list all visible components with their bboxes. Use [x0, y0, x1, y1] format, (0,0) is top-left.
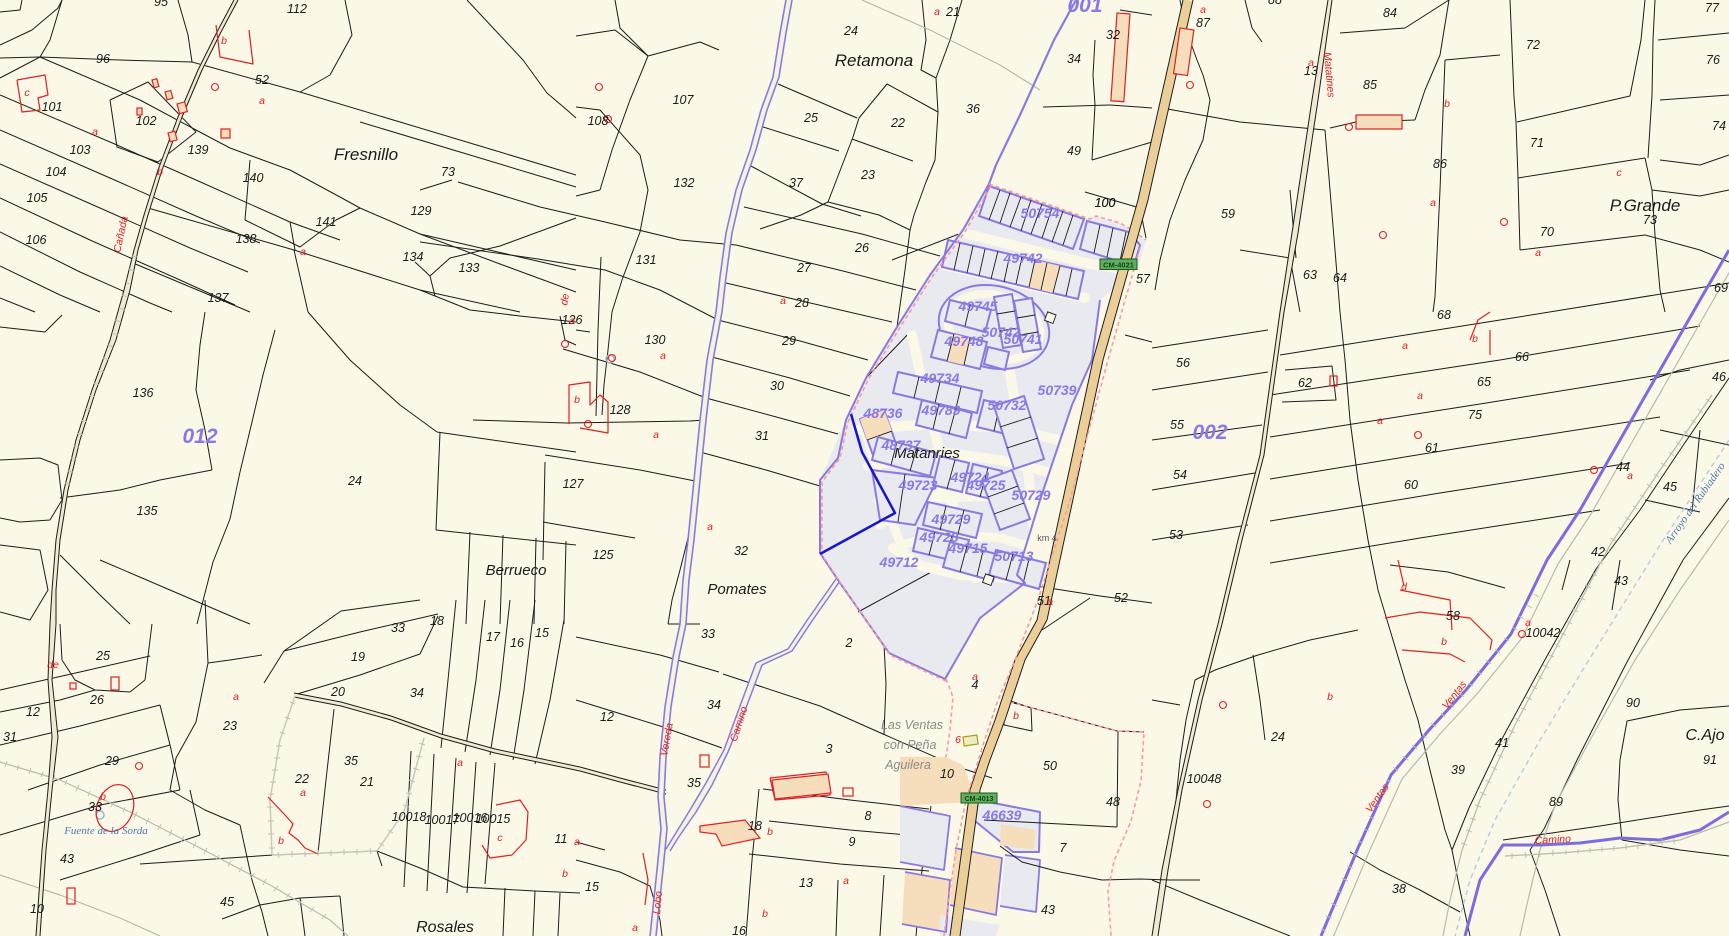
svg-text:a: a	[780, 295, 786, 307]
svg-text:16: 16	[732, 924, 746, 936]
svg-text:133: 133	[459, 261, 480, 275]
svg-text:a: a	[660, 350, 666, 362]
svg-text:Berrueco: Berrueco	[486, 562, 547, 579]
svg-text:24: 24	[347, 474, 362, 488]
svg-text:105: 105	[27, 191, 48, 205]
svg-text:45: 45	[220, 895, 234, 909]
svg-text:72: 72	[1526, 38, 1540, 52]
svg-text:a: a	[1535, 247, 1541, 259]
svg-text:85: 85	[1363, 78, 1377, 92]
svg-text:de: de	[558, 293, 572, 307]
svg-text:43: 43	[1614, 574, 1628, 588]
svg-text:a: a	[259, 95, 265, 107]
svg-text:112: 112	[287, 2, 307, 16]
svg-text:15: 15	[585, 880, 599, 894]
svg-text:a: a	[707, 521, 713, 533]
svg-text:50732: 50732	[988, 397, 1027, 413]
svg-text:49734: 49734	[920, 370, 960, 386]
svg-text:c: c	[1616, 167, 1622, 179]
svg-text:24: 24	[843, 24, 858, 38]
svg-text:22: 22	[890, 116, 905, 130]
svg-text:89: 89	[1549, 795, 1563, 809]
svg-text:26: 26	[854, 241, 869, 255]
svg-text:10: 10	[940, 767, 954, 781]
svg-text:50739: 50739	[1038, 382, 1077, 398]
svg-text:49: 49	[1067, 144, 1081, 158]
svg-text:49723: 49723	[898, 477, 938, 493]
svg-text:108: 108	[588, 114, 609, 128]
svg-text:57: 57	[1136, 272, 1151, 286]
svg-text:49725: 49725	[966, 477, 1006, 493]
svg-text:27: 27	[796, 261, 812, 275]
svg-text:136: 136	[133, 386, 154, 400]
svg-text:20: 20	[330, 685, 345, 699]
svg-text:32: 32	[1106, 28, 1120, 42]
svg-text:60: 60	[1404, 478, 1418, 492]
svg-text:137: 137	[208, 291, 230, 305]
svg-text:90: 90	[1626, 696, 1640, 710]
svg-text:77: 77	[1705, 1, 1720, 15]
svg-text:100: 100	[1095, 196, 1116, 210]
svg-text:b: b	[767, 826, 773, 838]
svg-text:86: 86	[1433, 157, 1447, 171]
svg-text:58: 58	[1446, 609, 1460, 623]
svg-text:Camino: Camino	[1534, 833, 1571, 847]
svg-text:45: 45	[1663, 480, 1677, 494]
svg-text:107: 107	[673, 93, 695, 107]
svg-text:37: 37	[789, 176, 804, 190]
svg-text:b: b	[221, 35, 227, 47]
svg-text:95: 95	[154, 0, 168, 9]
svg-text:CM-4021: CM-4021	[1103, 261, 1134, 270]
svg-text:49748: 49748	[944, 333, 984, 349]
svg-text:50: 50	[1043, 759, 1057, 773]
svg-text:C.Ajo: C.Ajo	[1685, 727, 1724, 744]
svg-text:18: 18	[748, 819, 762, 833]
svg-text:128: 128	[610, 403, 631, 417]
svg-text:12: 12	[26, 705, 40, 719]
svg-text:48736: 48736	[863, 405, 903, 421]
svg-text:12: 12	[600, 710, 614, 724]
svg-text:con Peña: con Peña	[884, 738, 937, 752]
svg-text:10015: 10015	[476, 812, 511, 826]
svg-text:25: 25	[803, 111, 818, 125]
svg-text:26: 26	[89, 693, 104, 707]
svg-text:129: 129	[411, 204, 432, 218]
svg-text:b: b	[762, 908, 768, 920]
svg-text:132: 132	[674, 176, 695, 190]
svg-text:18: 18	[430, 614, 444, 628]
svg-text:11: 11	[555, 832, 568, 846]
svg-text:50741: 50741	[1004, 331, 1043, 347]
svg-text:49742: 49742	[1003, 250, 1043, 266]
svg-text:65: 65	[1477, 375, 1491, 389]
svg-text:66: 66	[1515, 350, 1529, 364]
svg-text:49745: 49745	[958, 298, 998, 314]
svg-text:a: a	[300, 787, 306, 799]
svg-text:63: 63	[1303, 268, 1317, 282]
svg-text:33: 33	[391, 621, 405, 635]
svg-text:48: 48	[1106, 795, 1120, 809]
svg-text:Lobo: Lobo	[651, 890, 665, 914]
svg-text:16: 16	[510, 636, 524, 650]
svg-text:127: 127	[563, 477, 585, 491]
svg-text:125: 125	[593, 548, 614, 562]
svg-text:102: 102	[136, 114, 157, 128]
svg-text:56: 56	[1176, 356, 1190, 370]
svg-text:a: a	[934, 6, 940, 18]
svg-text:62: 62	[1298, 376, 1312, 390]
svg-text:64: 64	[1333, 271, 1347, 285]
svg-text:23: 23	[860, 168, 875, 182]
svg-text:a: a	[1430, 197, 1436, 209]
svg-text:b: b	[1444, 98, 1450, 110]
svg-text:c: c	[24, 87, 30, 99]
svg-text:50729: 50729	[1012, 487, 1051, 503]
svg-text:54: 54	[1173, 468, 1187, 482]
svg-text:a: a	[300, 246, 306, 258]
svg-text:Retamona: Retamona	[835, 51, 913, 70]
svg-text:b: b	[1327, 691, 1333, 703]
svg-text:32: 32	[734, 544, 748, 558]
svg-text:21: 21	[359, 775, 374, 789]
svg-text:50713: 50713	[995, 548, 1034, 564]
svg-text:134: 134	[403, 250, 424, 264]
svg-text:49712: 49712	[879, 554, 919, 570]
svg-text:36: 36	[966, 102, 980, 116]
svg-text:28: 28	[794, 296, 809, 310]
svg-text:23: 23	[222, 719, 237, 733]
svg-text:29: 29	[104, 754, 119, 768]
svg-text:a: a	[1377, 415, 1383, 427]
svg-text:a: a	[1402, 340, 1408, 352]
svg-text:CM-4013: CM-4013	[965, 796, 994, 803]
svg-text:10: 10	[30, 902, 44, 916]
svg-text:a: a	[653, 429, 659, 441]
svg-text:b: b	[1472, 333, 1478, 345]
svg-text:21: 21	[945, 5, 960, 19]
svg-text:43: 43	[1041, 903, 1055, 917]
svg-text:km 4: km 4	[1037, 533, 1057, 543]
svg-text:a: a	[843, 875, 849, 887]
svg-text:b: b	[278, 835, 284, 847]
svg-text:61: 61	[1425, 441, 1439, 455]
svg-text:74: 74	[1712, 119, 1726, 133]
svg-text:b: b	[157, 166, 163, 178]
svg-text:84: 84	[1383, 6, 1397, 20]
svg-text:a: a	[1308, 57, 1314, 69]
svg-text:b: b	[100, 791, 106, 803]
svg-text:130: 130	[645, 333, 666, 347]
svg-text:a: a	[972, 671, 978, 683]
svg-text:a: a	[1200, 4, 1206, 16]
svg-text:a: a	[569, 315, 575, 327]
svg-text:91: 91	[1703, 753, 1717, 767]
svg-text:35: 35	[687, 776, 701, 790]
svg-text:Pomates: Pomates	[707, 581, 767, 598]
svg-text:39: 39	[1451, 763, 1465, 777]
svg-text:38: 38	[1392, 882, 1406, 896]
svg-text:141: 141	[316, 215, 337, 229]
svg-text:35: 35	[344, 754, 358, 768]
svg-text:c: c	[497, 832, 503, 844]
svg-text:Fresnillo: Fresnillo	[334, 145, 398, 164]
svg-text:9: 9	[849, 835, 856, 849]
svg-text:b: b	[1013, 710, 1019, 722]
svg-text:73: 73	[1643, 213, 1657, 227]
svg-text:a: a	[1047, 596, 1053, 608]
svg-text:10018: 10018	[392, 810, 427, 824]
svg-text:69: 69	[1714, 281, 1728, 295]
svg-text:34: 34	[707, 698, 721, 712]
svg-text:012: 012	[182, 425, 217, 448]
svg-text:Las Ventas: Las Ventas	[881, 718, 943, 732]
svg-text:59: 59	[1221, 207, 1235, 221]
svg-text:Aguilera: Aguilera	[884, 758, 931, 772]
svg-text:42: 42	[1591, 545, 1605, 559]
svg-text:a: a	[92, 126, 98, 138]
svg-text:15: 15	[535, 626, 549, 640]
svg-text:a: a	[1627, 470, 1633, 482]
svg-text:49715: 49715	[948, 540, 988, 556]
svg-text:70: 70	[1540, 225, 1554, 239]
svg-text:103: 103	[70, 143, 91, 157]
svg-text:48737: 48737	[881, 437, 922, 453]
svg-text:140: 140	[243, 171, 264, 185]
svg-text:8: 8	[865, 809, 872, 823]
svg-text:53: 53	[1169, 528, 1183, 542]
svg-text:75: 75	[1468, 408, 1482, 422]
svg-text:52: 52	[255, 73, 269, 87]
svg-text:a: a	[457, 757, 463, 769]
svg-text:19: 19	[351, 650, 365, 664]
svg-text:34: 34	[410, 686, 424, 700]
svg-text:3: 3	[826, 742, 833, 756]
svg-text:52: 52	[1114, 591, 1128, 605]
svg-text:31: 31	[755, 429, 769, 443]
svg-text:76: 76	[1706, 53, 1720, 67]
svg-text:31: 31	[3, 730, 17, 744]
svg-text:34: 34	[1067, 52, 1081, 66]
svg-text:10048: 10048	[1187, 772, 1222, 786]
svg-text:104: 104	[46, 165, 67, 179]
svg-text:73: 73	[441, 165, 455, 179]
svg-text:25: 25	[95, 649, 110, 663]
svg-text:138: 138	[236, 232, 257, 246]
svg-text:Fuente de la Sorda: Fuente de la Sorda	[63, 825, 148, 837]
svg-text:33: 33	[701, 627, 715, 641]
svg-text:7: 7	[1060, 841, 1068, 855]
svg-text:43: 43	[60, 852, 74, 866]
svg-text:29: 29	[781, 334, 796, 348]
svg-text:50754: 50754	[1021, 205, 1060, 221]
svg-text:71: 71	[1530, 136, 1544, 150]
svg-text:a: a	[1525, 617, 1531, 629]
svg-text:24: 24	[1270, 730, 1285, 744]
svg-text:13: 13	[799, 876, 813, 890]
svg-text:46639: 46639	[982, 807, 1022, 823]
svg-text:002: 002	[1192, 421, 1227, 444]
svg-text:135: 135	[137, 504, 158, 518]
svg-text:Rosales: Rosales	[416, 919, 474, 936]
svg-text:22: 22	[294, 772, 309, 786]
svg-text:87: 87	[1196, 16, 1211, 30]
svg-text:a: a	[632, 922, 638, 934]
svg-text:68: 68	[1437, 308, 1451, 322]
svg-text:139: 139	[188, 143, 209, 157]
svg-text:6: 6	[955, 734, 961, 746]
svg-text:b: b	[1441, 636, 1447, 648]
svg-text:96: 96	[96, 52, 110, 66]
svg-text:a: a	[574, 836, 580, 848]
svg-text:001: 001	[1067, 0, 1102, 17]
svg-text:106: 106	[26, 233, 47, 247]
svg-text:b: b	[574, 394, 580, 406]
svg-text:49729: 49729	[931, 511, 971, 527]
svg-text:101: 101	[42, 100, 63, 114]
svg-text:b: b	[562, 868, 568, 880]
svg-text:2: 2	[845, 636, 853, 650]
svg-text:46: 46	[1712, 370, 1726, 384]
svg-text:a: a	[1417, 390, 1423, 402]
svg-text:de: de	[47, 659, 59, 671]
svg-text:49789: 49789	[921, 402, 961, 418]
svg-text:41: 41	[1495, 736, 1509, 750]
svg-text:88: 88	[1268, 0, 1282, 7]
svg-text:30: 30	[770, 379, 784, 393]
svg-text:131: 131	[636, 253, 657, 267]
svg-text:a: a	[233, 691, 239, 703]
svg-text:17: 17	[486, 630, 501, 644]
svg-text:55: 55	[1170, 418, 1184, 432]
